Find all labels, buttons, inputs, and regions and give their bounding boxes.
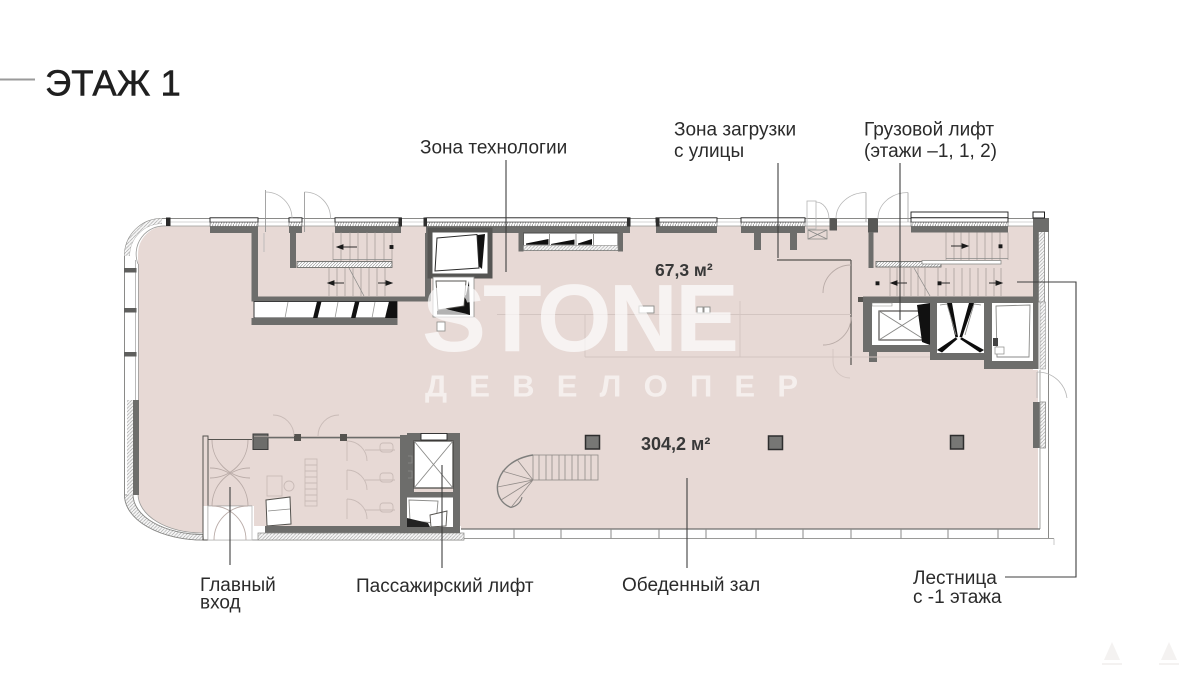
svg-text:вход: вход — [200, 593, 241, 614]
svg-text:(этажи –1, 1, 2): (этажи –1, 1, 2) — [864, 141, 997, 162]
svg-text:Пассажирский лифт: Пассажирский лифт — [356, 576, 534, 597]
svg-text:Зона технологии: Зона технологии — [420, 138, 567, 159]
svg-text:Обеденный зал: Обеденный зал — [622, 575, 760, 596]
svg-text:304,2 м²: 304,2 м² — [641, 434, 710, 454]
svg-text:ЭТАЖ 1: ЭТАЖ 1 — [45, 63, 181, 104]
svg-text:Лестница: Лестница — [913, 568, 997, 589]
svg-text:Зона загрузки: Зона загрузки — [674, 120, 796, 141]
svg-text:с -1 этажа: с -1 этажа — [913, 587, 1002, 608]
svg-text:Грузовой лифт: Грузовой лифт — [864, 120, 994, 141]
svg-text:67,3 м²: 67,3 м² — [655, 260, 713, 280]
svg-text:с улицы: с улицы — [674, 141, 744, 162]
svg-text:ДЕВЕЛОПЕР: ДЕВЕЛОПЕР — [425, 369, 798, 404]
svg-text:STONE: STONE — [422, 265, 739, 372]
